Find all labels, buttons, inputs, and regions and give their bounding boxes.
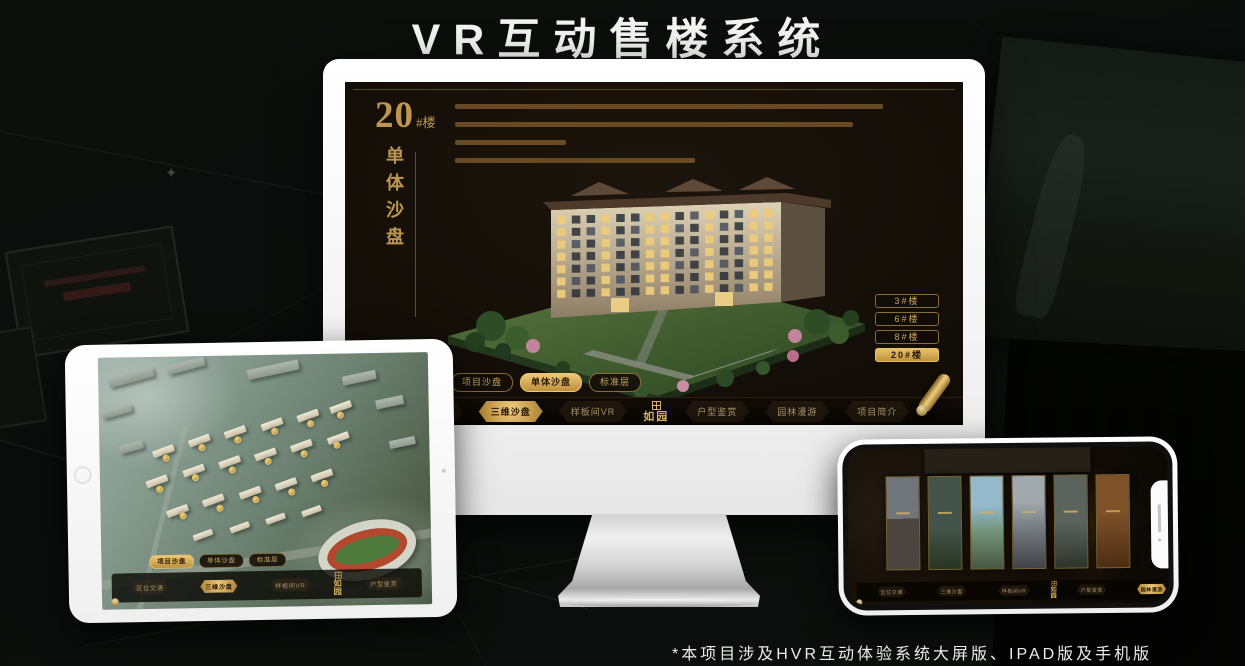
- gold-divider: [415, 152, 416, 317]
- building-number-badge[interactable]: [265, 458, 272, 465]
- aerial-building-block: [265, 513, 286, 525]
- menu-item[interactable]: 项目简介: [845, 401, 909, 422]
- aerial-building-block: [229, 521, 250, 533]
- floor-button[interactable]: 6#楼: [875, 312, 939, 326]
- gallery-panel[interactable]: [969, 475, 1004, 569]
- phone-speaker-icon: [1158, 504, 1161, 532]
- view-subtabs: 项目沙盘单体沙盘标准层: [149, 553, 286, 569]
- monitor-stand: [558, 514, 760, 607]
- view-subtab[interactable]: 单体沙盘: [520, 373, 582, 392]
- aerial-building-block: [342, 370, 377, 386]
- building-number-badge[interactable]: [162, 455, 169, 462]
- building-number-badge[interactable]: [180, 513, 187, 520]
- description-text-line: [455, 140, 566, 145]
- menu-item[interactable]: 样板间VR: [998, 585, 1030, 596]
- floor-button-group: 3#楼6#楼8#楼20#楼: [875, 294, 939, 362]
- brand-logo[interactable]: 如园: [1050, 581, 1057, 599]
- building-number: 20: [375, 95, 414, 136]
- building-number-badge[interactable]: [156, 485, 163, 492]
- brand-seal-icon: [1052, 581, 1057, 586]
- building-subtitle-vertical: 单体沙盘: [381, 146, 407, 254]
- gallery-panel[interactable]: [1053, 474, 1088, 568]
- bg-aerial-photo: [971, 36, 1245, 363]
- building-heading: 20#楼: [375, 94, 436, 137]
- view-subtab[interactable]: 标准层: [589, 373, 641, 392]
- menu-item[interactable]: 园林漫游: [765, 401, 829, 422]
- building-number-badge[interactable]: [307, 420, 314, 427]
- building-number-badge[interactable]: [192, 475, 199, 482]
- tablet-home-button[interactable]: [74, 466, 92, 484]
- footnote: *本项目涉及HVR互动体验系统大屏版、IPAD版及手机版: [672, 640, 1152, 664]
- view-subtab[interactable]: 项目沙盘: [149, 555, 194, 569]
- building-number-badge[interactable]: [334, 442, 341, 449]
- poster-canvas: ✦ ✦ VR互动售楼系统 20#楼 单体沙盘: [0, 0, 1245, 666]
- building-number-suffix: #楼: [416, 115, 436, 130]
- phone-notch: [1151, 480, 1169, 568]
- page-title: VR互动售楼系统: [0, 5, 1245, 67]
- menu-item[interactable]: 样板间VR: [559, 401, 628, 422]
- building-number-badge[interactable]: [216, 504, 223, 511]
- view-subtabs: 项目沙盘单体沙盘标准层: [451, 373, 641, 392]
- phone-screen: 区位交通三维沙盘样板间VR 如园 户型鉴赏园林漫游项目简介: [847, 446, 1169, 605]
- view-subtab[interactable]: 单体沙盘: [199, 554, 244, 568]
- building-number-badge[interactable]: [336, 412, 343, 419]
- gold-frame-line: [353, 89, 955, 90]
- building-number-badge[interactable]: [321, 480, 328, 487]
- floor-button[interactable]: 20#楼: [875, 348, 939, 362]
- menu-item[interactable]: 区位交通: [877, 586, 906, 597]
- brand-seal-icon: [335, 572, 342, 579]
- gallery-panel[interactable]: [1095, 474, 1130, 568]
- building-number-badge[interactable]: [228, 466, 235, 473]
- gallery-panel[interactable]: [885, 476, 920, 570]
- description-text-line: [455, 122, 853, 127]
- phone-camera-icon: [1158, 538, 1161, 541]
- building-number-badge[interactable]: [301, 450, 308, 457]
- floor-button[interactable]: 8#楼: [875, 330, 939, 344]
- menu-item[interactable]: 样板间VR: [270, 578, 310, 592]
- building-number-badge[interactable]: [288, 488, 295, 495]
- menu-item[interactable]: 三维沙盘: [479, 401, 543, 422]
- brand-seal-icon: [652, 401, 661, 410]
- view-subtab[interactable]: 标准层: [249, 553, 287, 567]
- gallery-panel[interactable]: [1011, 475, 1046, 569]
- floor-button[interactable]: 3#楼: [875, 294, 939, 308]
- view-subtab[interactable]: 项目沙盘: [451, 373, 513, 392]
- menu-item[interactable]: 园林漫游: [1137, 584, 1166, 595]
- phone-device: 区位交通三维沙盘样板间VR 如园 户型鉴赏园林漫游项目简介: [837, 436, 1179, 616]
- scroll-handle-icon[interactable]: [928, 371, 941, 415]
- building-number-badge[interactable]: [235, 436, 242, 443]
- menu-item[interactable]: 户型鉴赏: [685, 401, 749, 422]
- menu-item[interactable]: 三维沙盘: [200, 579, 237, 593]
- building-number-badge[interactable]: [252, 496, 259, 503]
- gallery-panel[interactable]: [927, 476, 962, 570]
- phone-menubar: 区位交通三维沙盘样板间VR 如园 户型鉴赏园林漫游项目简介: [857, 579, 1161, 601]
- tablet-camera-icon: [442, 469, 446, 473]
- description-text-line: [455, 104, 883, 109]
- building-number-badge[interactable]: [271, 428, 278, 435]
- brand-logo[interactable]: 如园: [643, 401, 669, 423]
- gallery-panels: [885, 474, 1130, 571]
- aerial-building-block: [193, 529, 214, 541]
- menu-item[interactable]: 户型鉴赏: [1077, 584, 1106, 595]
- menu-item[interactable]: 区位交通: [131, 581, 168, 595]
- tablet-screen: 项目沙盘单体沙盘标准层 区位交通三维沙盘样板间VR 如园 户型鉴赏: [98, 352, 432, 610]
- menu-item[interactable]: 户型鉴赏: [365, 577, 402, 591]
- tablet-device: 项目沙盘单体沙盘标准层 区位交通三维沙盘样板间VR 如园 户型鉴赏: [65, 339, 458, 624]
- aerial-building-block: [389, 436, 416, 449]
- brand-logo[interactable]: 如园: [333, 572, 343, 597]
- aerial-building-block: [375, 395, 404, 410]
- interior-ceiling: [924, 447, 1091, 474]
- sparkle-icon: ✦: [165, 164, 178, 182]
- menu-item[interactable]: 三维沙盘: [937, 586, 966, 597]
- tablet-menubar: 区位交通三维沙盘样板间VR 如园 户型鉴赏园林漫游项目简介: [112, 568, 422, 602]
- aerial-building-block: [246, 360, 299, 381]
